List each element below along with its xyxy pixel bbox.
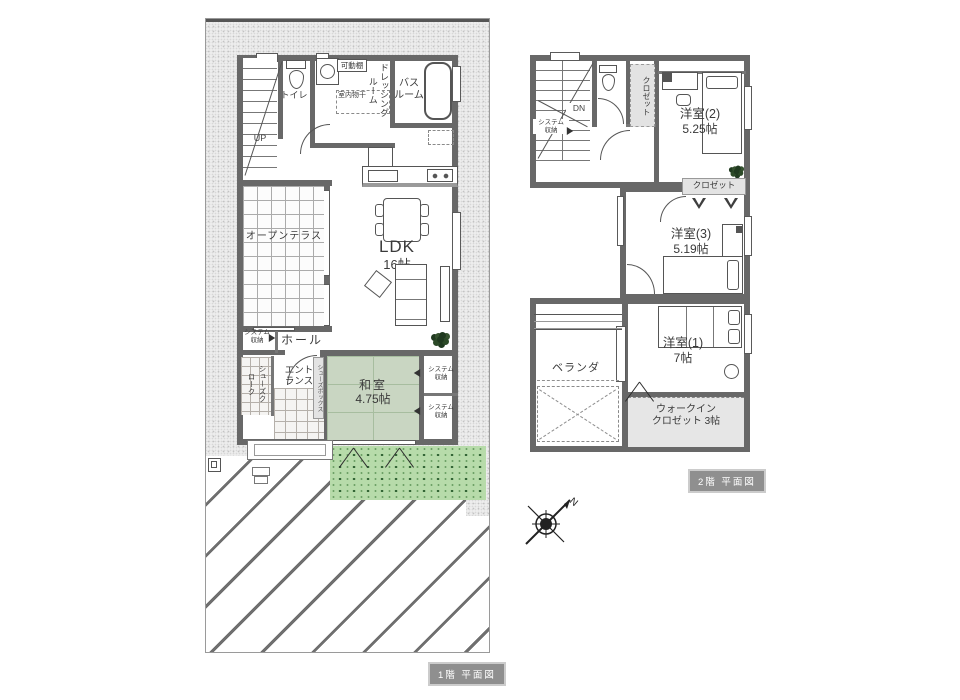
cupboard [428,130,454,145]
toilet2-tank [599,65,617,73]
bathtub [424,62,452,120]
system-storage-l2: 収納 [424,412,458,420]
stairs-dn-label: DN [566,103,592,113]
room1-l2: 7帖 [650,351,716,365]
kitchen-sink [368,170,398,182]
system-storage-2f-label: システム 収納 [533,119,569,134]
wall [390,123,458,128]
window [744,314,752,354]
chair [420,223,429,236]
veranda-floor-mark [537,386,619,442]
desk-chair [663,73,672,82]
meter-box-inner [211,461,217,468]
wall [592,61,597,127]
window [452,66,461,102]
floor2-badge: 2階 平面図 [688,469,766,493]
storage-door-arrow [269,334,275,342]
bathroom-label-l2: ルーム [392,90,426,102]
open-terrace-label: オープンテラス [240,231,328,243]
stove [427,169,453,182]
tv-board [440,266,450,322]
room1-label: 洋室(1) 7帖 [650,336,716,365]
shoe-box-label: シューズボックス [314,359,323,417]
washitsu-l2: 4.75帖 [341,392,405,406]
dining-table [383,198,421,242]
stool [676,94,691,106]
compass: N [520,492,580,548]
room2-label: 洋室(2) 5.25帖 [666,107,734,136]
system-storage-l1: システム [424,404,458,412]
plant-icon [437,336,444,343]
room3-l2: 5.19帖 [658,242,724,256]
floor-plan-canvas: UP トイレ 可動棚 室内物干 ドレッシングルーム バス ルーム LDK 16帖… [0,0,960,700]
refrigerator [368,147,393,167]
door-swing-marks [340,448,366,472]
plant-icon [734,169,740,175]
veranda-rail [534,314,622,330]
chair [375,204,384,217]
entrance-step-box [252,467,270,476]
door-swing-marks [386,448,412,472]
bathroom-label: バス ルーム [392,78,426,102]
chair [420,204,429,217]
compass-rose-icon: N [520,492,580,548]
staircase-1f [243,58,277,178]
walk-in-closet-label: ウォークイン クロゼット 3帖 [630,404,742,428]
dressing-room-label: ドレッシングルーム [363,60,389,120]
open-terrace-floor [243,186,324,326]
closet-box-label: クロゼット [682,180,746,190]
sofa [395,264,427,326]
washbasin-bowl [320,64,335,79]
pillow [727,260,739,290]
veranda-label: ベランダ [546,362,606,375]
washitsu-l1: 和室 [341,378,405,392]
veranda-window [616,326,626,382]
room1-l1: 洋室(1) [650,336,716,351]
stairs-up-label: UP [244,133,276,144]
veranda-dash-line [537,380,619,381]
wic-l1: ウォークイン [630,404,742,416]
door-swing-marks [632,382,646,396]
room2-l2: 5.25帖 [666,122,734,136]
toilet-tank [286,60,306,69]
system-storage-l1: システム [424,366,458,374]
wall [424,393,458,396]
hanger-icon [724,198,738,209]
storage-door-arrow [414,407,420,415]
hanger-icon [692,198,706,209]
chair [375,223,384,236]
compass-north-label: N [567,496,580,509]
pillow [706,76,738,89]
desk-chair [736,226,743,233]
window [617,196,624,246]
shoes-cloak-label: シューズクローク [244,364,268,404]
storage-door-arrow [567,127,573,135]
room3-l1: 洋室(3) [658,227,724,242]
closet-2f-top-label: クロゼット [633,66,652,125]
room3-label: 洋室(3) 5.19帖 [658,227,724,256]
hall-label: ホール [279,333,325,347]
system-storage-1-label: システム 収納 [424,366,458,381]
system-storage-l2: 収納 [424,374,458,382]
entrance-step-box [254,476,268,484]
toilet-label: トイレ [276,90,312,101]
window [550,52,580,61]
floor1-badge: 1階 平面図 [428,662,506,686]
ldk-label-l1: LDK [370,237,424,257]
window [744,86,752,130]
bathroom-label-l1: バス [392,78,426,90]
storage-door-arrow [414,369,420,377]
window [744,216,752,256]
chair [724,364,739,379]
pillow [728,329,740,344]
pillow [728,310,740,325]
porch-step-inner [254,444,326,456]
washitsu-sliding-door [332,440,416,445]
room2-l1: 洋室(2) [666,107,734,122]
wic-l2: クロゼット 3帖 [630,416,742,428]
system-storage-2-label: システム 収納 [424,404,458,419]
system-storage-l2: 収納 [533,127,569,135]
window [452,212,461,270]
washitsu-label: 和室 4.75帖 [341,378,405,406]
system-storage-l1: システム [533,119,569,127]
site-north-boundary [206,19,489,22]
